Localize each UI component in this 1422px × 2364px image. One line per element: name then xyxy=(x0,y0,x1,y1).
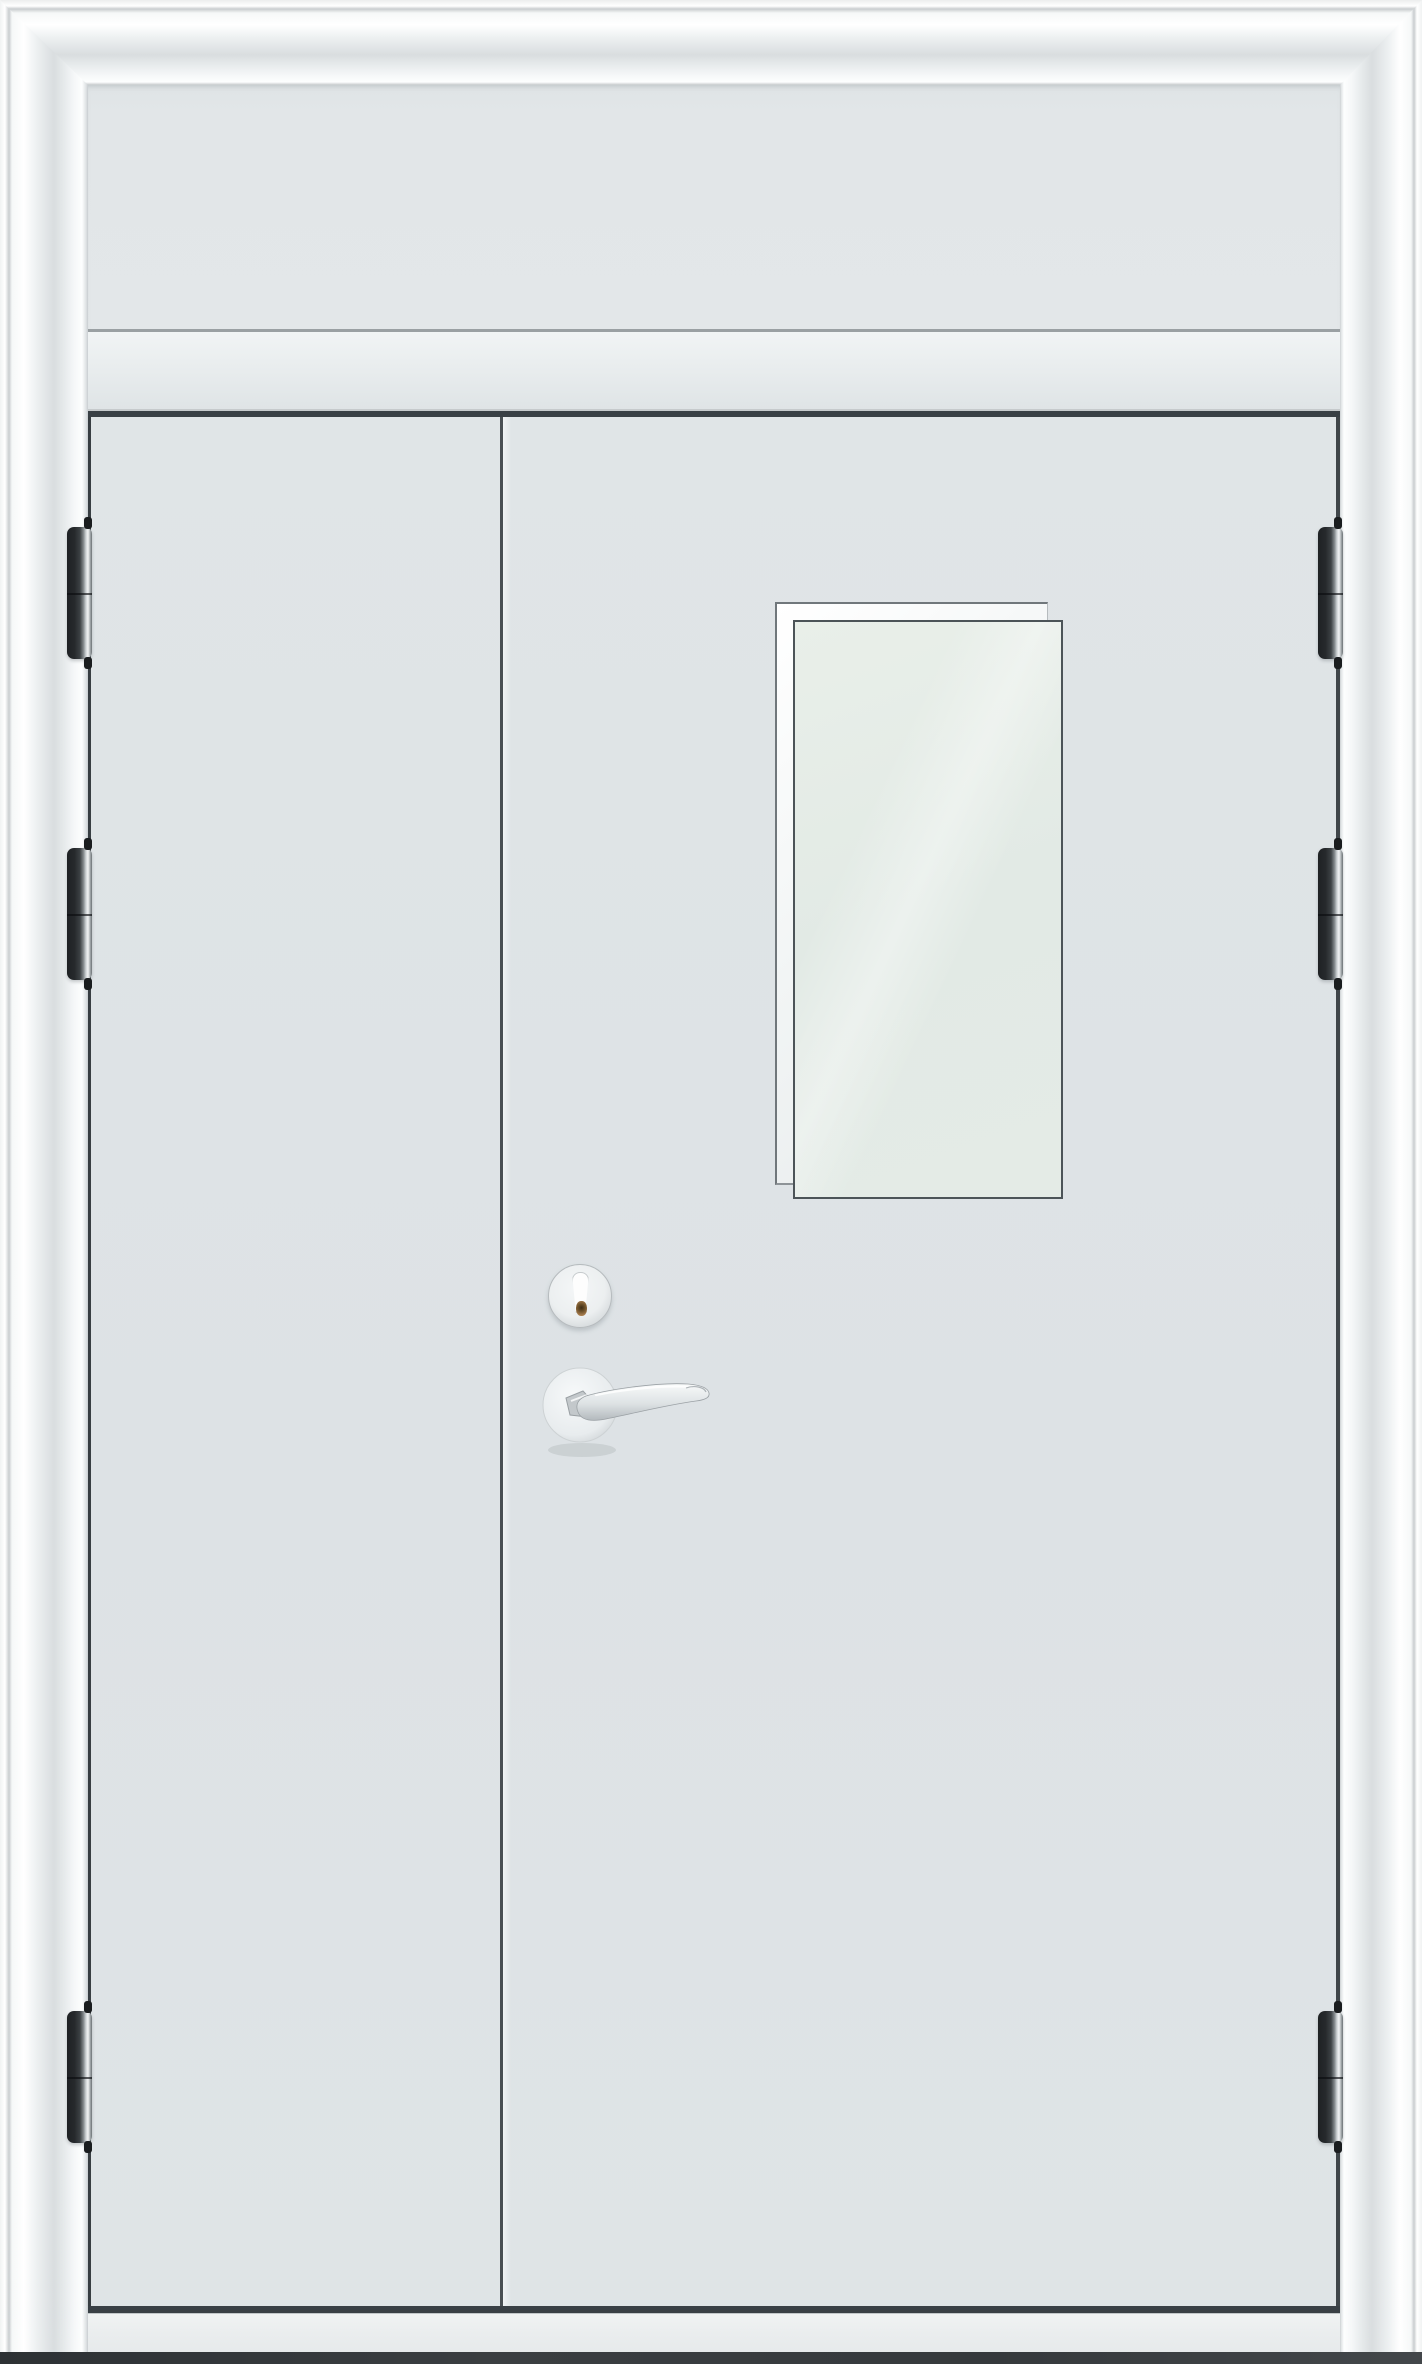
transom-panel xyxy=(88,85,1340,331)
floor-line xyxy=(0,2352,1422,2364)
hinge-right xyxy=(1318,2011,1343,2143)
lock-cylinder xyxy=(548,1264,612,1328)
leaf-meeting-stile-highlight xyxy=(503,417,511,2311)
door-frame-right xyxy=(1340,0,1422,2364)
vision-window xyxy=(775,602,1048,1185)
keyway-brass-pin xyxy=(576,1301,587,1316)
fire-door-photo xyxy=(0,0,1422,2364)
hinge-pin xyxy=(84,978,92,990)
door-bottom-gap-line xyxy=(88,2306,1340,2313)
hinge-pin xyxy=(1334,838,1342,850)
hinge-pin xyxy=(84,2141,92,2153)
hinge-left xyxy=(67,2011,92,2143)
hinge-pin xyxy=(1334,517,1342,529)
hinge-right xyxy=(1318,848,1343,980)
hinge-left xyxy=(67,527,92,659)
transom-rail xyxy=(88,332,1340,411)
hinge-pin xyxy=(1334,978,1342,990)
lever-handle-graphic xyxy=(536,1358,736,1462)
hinge-pin xyxy=(1334,2141,1342,2153)
hinge-pin xyxy=(84,517,92,529)
hinge-pin xyxy=(84,657,92,669)
hinge-left xyxy=(67,848,92,980)
hinge-pin xyxy=(84,2001,92,2013)
lever-handle xyxy=(536,1358,736,1462)
handle-shadow xyxy=(548,1443,616,1457)
hinge-pin xyxy=(84,838,92,850)
hinge-right xyxy=(1318,527,1343,659)
hinge-pin xyxy=(1334,2001,1342,2013)
door-leaf-left xyxy=(91,417,500,2311)
window-glass xyxy=(793,620,1063,1199)
door-frame-top xyxy=(0,0,1422,85)
hinge-pin xyxy=(1334,657,1342,669)
door-frame-left xyxy=(0,0,88,2364)
